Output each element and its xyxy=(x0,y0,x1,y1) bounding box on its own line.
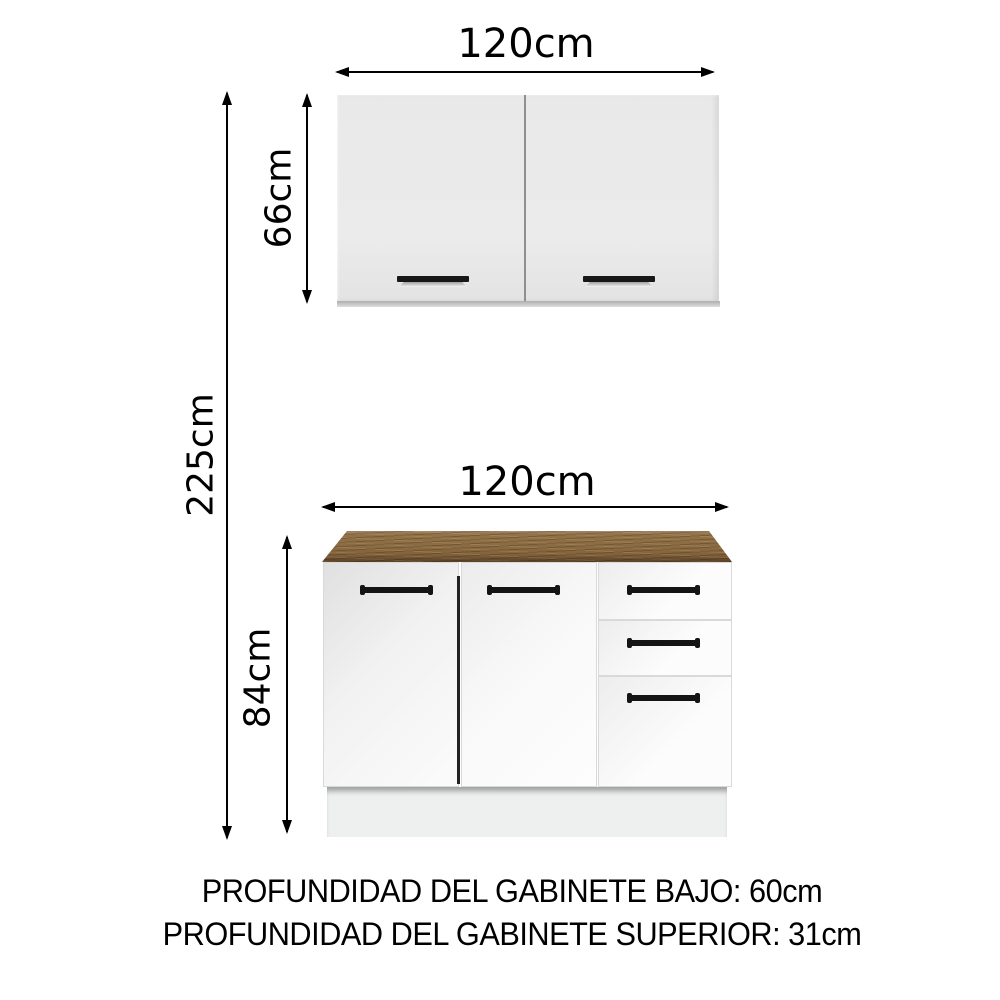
handle-bar xyxy=(583,276,655,282)
drawer-3-handle xyxy=(627,695,700,701)
total-height-label: 225cm xyxy=(181,393,222,517)
lower-right-door xyxy=(461,562,597,787)
depth-notes: PROFUNDIDAD DEL GABINETE BAJO: 60cm PROF… xyxy=(32,870,992,956)
drawer-2 xyxy=(598,620,732,676)
depth-note-lower-cabinet: PROFUNDIDAD DEL GABINETE BAJO: 60cm xyxy=(32,870,992,913)
handle-bar xyxy=(397,276,469,282)
lower-left-door xyxy=(323,562,459,787)
lower-left-door-handle xyxy=(360,587,433,593)
product-dimension-diagram: 120cm 66cm 225cm 120cm 8 xyxy=(0,0,1000,1000)
upper-height-label: 66cm xyxy=(259,148,300,249)
lower-height-label: 84cm xyxy=(238,628,279,729)
plinth xyxy=(327,787,727,837)
drawer-3 xyxy=(598,676,732,787)
lower-width-label: 120cm xyxy=(458,459,595,505)
handle-recess xyxy=(585,282,653,287)
upper-cabinet-door-divider xyxy=(524,95,526,301)
lower-right-door-handle xyxy=(487,587,560,593)
upper-right-door-handle xyxy=(583,276,655,287)
lower-door-gap xyxy=(457,576,460,784)
upper-width-arrow xyxy=(337,71,713,73)
lower-height-arrow xyxy=(286,537,288,832)
drawer-2-handle xyxy=(627,640,700,646)
upper-cabinet-bottom-shadow xyxy=(337,301,720,307)
drawer-1-handle xyxy=(627,587,700,593)
lower-width-arrow xyxy=(323,506,727,508)
countertop xyxy=(322,531,732,562)
handle-recess xyxy=(399,282,467,287)
upper-left-door-handle xyxy=(397,276,469,287)
upper-width-label: 120cm xyxy=(457,21,594,67)
upper-height-arrow xyxy=(306,95,308,302)
depth-note-upper-cabinet: PROFUNDIDAD DEL GABINETE SUPERIOR: 31cm xyxy=(32,913,992,956)
upper-cabinet xyxy=(337,95,719,301)
total-height-arrow xyxy=(226,93,228,838)
lower-cabinet xyxy=(323,562,732,787)
